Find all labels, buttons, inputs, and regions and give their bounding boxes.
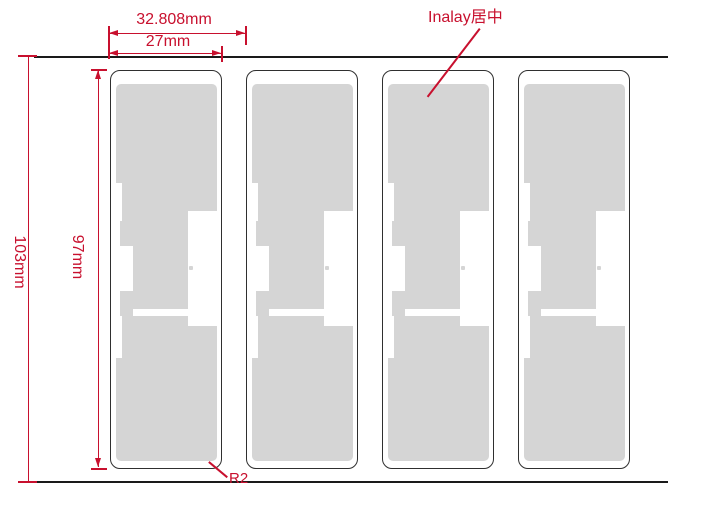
tag-height-arrow-down <box>95 458 101 467</box>
antenna-pad-top <box>252 84 353 183</box>
chip-pad-right <box>325 266 329 270</box>
inlay-centered-callout-label: Inalay居中 <box>428 9 503 27</box>
antenna-pad-bottom <box>524 358 625 461</box>
web-height-dimension-label: 103mm <box>10 232 28 292</box>
antenna-neck-top <box>258 211 324 221</box>
chip-pad-right <box>461 266 465 270</box>
antenna-step-bottom <box>258 326 353 358</box>
chip-pad-left <box>168 266 172 270</box>
tag-outline <box>246 70 358 469</box>
tag-outline <box>382 70 494 469</box>
chip-pad-right <box>189 266 193 270</box>
tag-height-arrow-up <box>95 70 101 79</box>
tag-height-tick-bottom <box>91 468 107 470</box>
die-layout-drawing: 32.808mm 27mm 103mm 97mm Inalay居中 R2 <box>0 0 705 509</box>
antenna-step-bottom <box>394 326 489 358</box>
antenna-step-top <box>530 183 625 211</box>
antenna-pad-top <box>388 84 489 183</box>
antenna-side-strip-bottom <box>120 291 133 316</box>
antenna-side-strip-top <box>528 221 541 246</box>
antenna-neck-bottom <box>394 316 460 326</box>
extension-line-pitch-right <box>245 26 247 45</box>
antenna-step-top <box>258 183 353 211</box>
antenna-side-strip-top <box>392 221 405 246</box>
antenna-side-strip-bottom <box>392 291 405 316</box>
chip-pad-right <box>597 266 601 270</box>
antenna-side-strip-bottom <box>528 291 541 316</box>
rfid-chip <box>446 262 457 273</box>
antenna-neck-top <box>394 211 460 221</box>
tag-height-dimension-line <box>98 71 100 467</box>
antenna-side-strip-top <box>256 221 269 246</box>
antenna-side-strip-bottom <box>256 291 269 316</box>
antenna-step-top <box>122 183 217 211</box>
tag-height-dimension-label: 97mm <box>68 227 86 287</box>
antenna-step-top <box>394 183 489 211</box>
antenna-neck-bottom <box>258 316 324 326</box>
antenna-neck-bottom <box>530 316 596 326</box>
antenna-step-bottom <box>122 326 217 358</box>
chip-pad-left <box>440 266 444 270</box>
rfid-chip <box>174 262 185 273</box>
tag-outline <box>110 70 222 469</box>
pitch-dimension-label: 32.808mm <box>114 11 234 29</box>
liner-bottom-edge <box>34 481 668 483</box>
tag-outline <box>518 70 630 469</box>
tag-width-dimension-line <box>109 53 221 55</box>
antenna-pad-bottom <box>252 358 353 461</box>
antenna-pad-top <box>524 84 625 183</box>
rfid-chip <box>310 262 321 273</box>
antenna-pad-bottom <box>388 358 489 461</box>
corner-radius-label: R2 <box>229 470 248 488</box>
chip-pad-left <box>576 266 580 270</box>
antenna-neck-bottom <box>122 316 188 326</box>
antenna-neck-top <box>122 211 188 221</box>
pitch-arrow-right <box>236 30 245 36</box>
liner-top-edge <box>34 56 668 58</box>
antenna-step-bottom <box>530 326 625 358</box>
antenna-neck-top <box>530 211 596 221</box>
chip-pad-left <box>304 266 308 270</box>
antenna-side-strip-top <box>120 221 133 246</box>
tag-width-dimension-label: 27mm <box>108 33 228 51</box>
antenna-pad-top <box>116 84 217 183</box>
antenna-pad-bottom <box>116 358 217 461</box>
rfid-chip <box>582 262 593 273</box>
web-height-tick-bottom <box>18 481 37 483</box>
